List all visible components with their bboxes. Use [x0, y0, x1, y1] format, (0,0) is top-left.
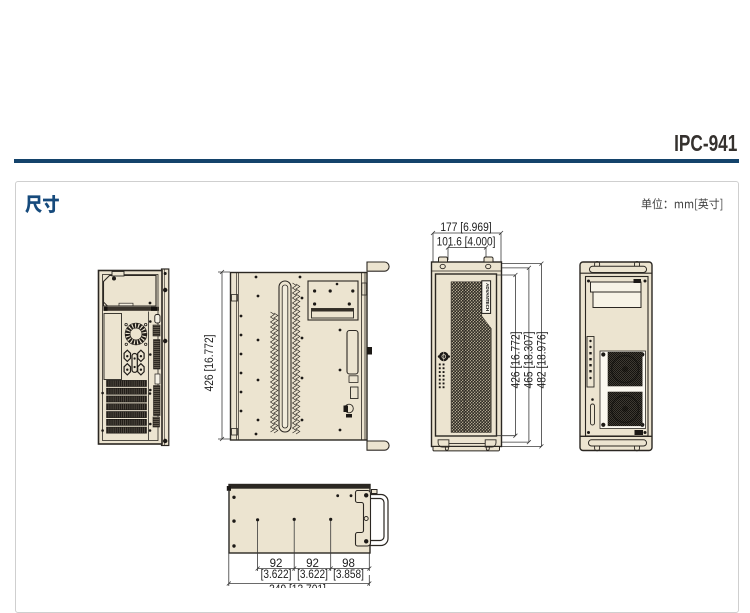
svg-text:349 [13.701]: 349 [13.701] [269, 584, 326, 588]
svg-text:177 [6.969]: 177 [6.969] [440, 222, 491, 234]
svg-text:[3.858]: [3.858] [333, 569, 364, 581]
svg-text:101.6 [4.000]: 101.6 [4.000] [437, 237, 496, 249]
svg-text:465 [18.307]: 465 [18.307] [524, 332, 536, 389]
svg-text:[3.622]: [3.622] [297, 569, 328, 581]
svg-text:426 [16.772]: 426 [16.772] [511, 332, 523, 389]
svg-text:482 [18.976]: 482 [18.976] [537, 332, 549, 389]
svg-text:ADVANTECH: ADVANTECH [485, 283, 490, 312]
svg-text:426 [16.772]: 426 [16.772] [204, 335, 216, 392]
svg-text:[3.622]: [3.622] [261, 569, 292, 581]
